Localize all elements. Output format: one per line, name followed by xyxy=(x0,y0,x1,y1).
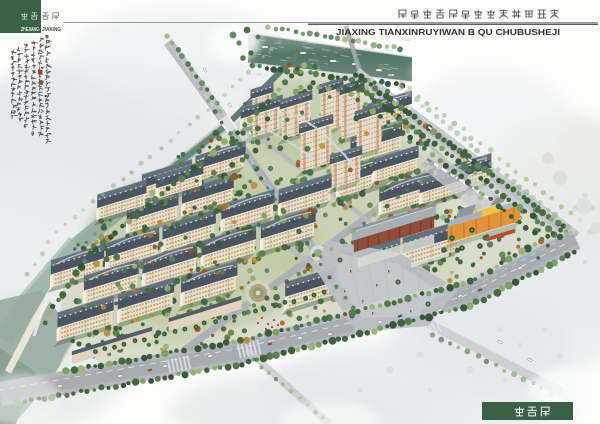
svg-text:JIAXING TIANXINRUYIWAN B QU CH: JIAXING TIANXINRUYIWAN B QU CHUBUSHEJI xyxy=(336,28,560,37)
svg-text:ZHEJIANG-: ZHEJIANG- xyxy=(21,27,40,33)
svg-text:JIAXING: JIAXING xyxy=(42,27,61,33)
